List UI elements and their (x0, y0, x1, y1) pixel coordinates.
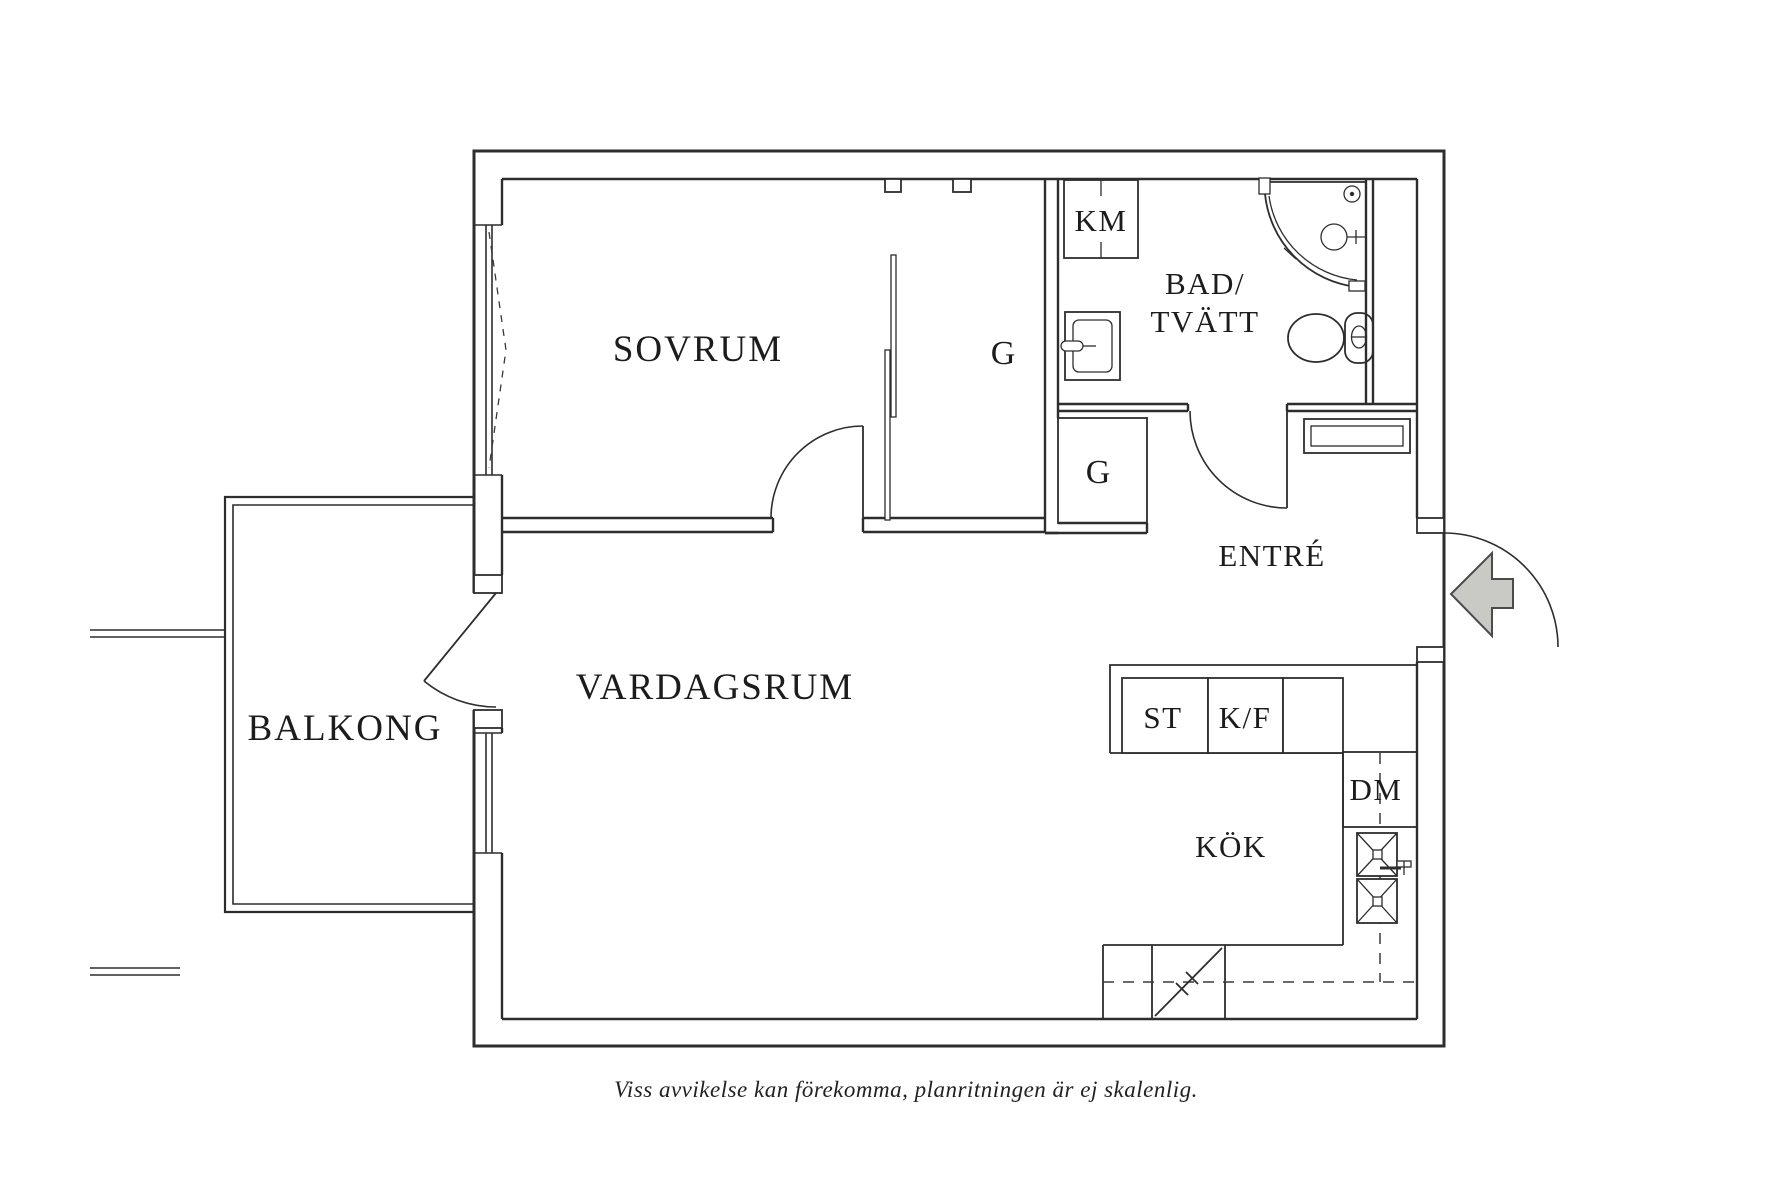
kf-label: K/F (1219, 700, 1272, 735)
shower-knob-icon (1321, 224, 1347, 250)
balcony-door-jamb-top (474, 575, 502, 593)
sovrum-window (486, 225, 506, 475)
front-door-jamb-top (1417, 518, 1444, 533)
room-labels: SOVRUM VARDAGSRUM BALKONG ENTRÉ BAD/ TVÄ… (248, 203, 1403, 864)
neighbor-structure-line (90, 630, 225, 637)
wardrobe-sliding-doors (885, 255, 896, 520)
garderob-entre-label: G (1086, 454, 1111, 491)
toilet (1288, 313, 1373, 363)
garderob-sovrum-label: G (991, 335, 1016, 372)
neighbor-structure-line (90, 968, 180, 975)
front-door-jamb-bottom (1417, 647, 1444, 662)
entre-label: ENTRÉ (1218, 538, 1325, 573)
balcony-door-jamb-bottom (474, 710, 502, 728)
exterior-walls (474, 151, 1444, 1046)
floorplan-page: SOVRUM VARDAGSRUM BALKONG ENTRÉ BAD/ TVÄ… (0, 0, 1780, 1187)
balcony-door (424, 593, 496, 707)
front-door (1444, 533, 1558, 647)
corner-cabinet (1283, 678, 1343, 753)
bathroom-sink (1061, 312, 1120, 380)
wall-notch-icon (885, 179, 901, 192)
sovrum-label: SOVRUM (613, 329, 783, 370)
entry-arrow-icon (1451, 553, 1513, 636)
shower (1259, 178, 1366, 291)
balkong-label: BALKONG (248, 708, 443, 749)
sovrum-door (771, 426, 863, 518)
floorplan-drawing: SOVRUM VARDAGSRUM BALKONG ENTRÉ BAD/ TVÄ… (0, 0, 1780, 1187)
vardagsrum-window (486, 733, 492, 853)
bad-label-line1: BAD/ (1165, 266, 1245, 301)
st-label: ST (1143, 700, 1182, 735)
vardagsrum-label: VARDAGSRUM (576, 667, 854, 708)
kok-label: KÖK (1195, 829, 1267, 864)
entre-shelf (1304, 419, 1410, 453)
bathroom-door (1190, 411, 1287, 508)
dm-label: DM (1350, 772, 1403, 807)
disclaimer-text: Viss avvikelse kan förekomma, planritnin… (614, 1077, 1198, 1102)
wall-notch-icon (953, 179, 971, 192)
km-label: KM (1075, 203, 1128, 238)
bad-label-line2: TVÄTT (1150, 304, 1259, 339)
kitchen-sink (1357, 833, 1411, 923)
